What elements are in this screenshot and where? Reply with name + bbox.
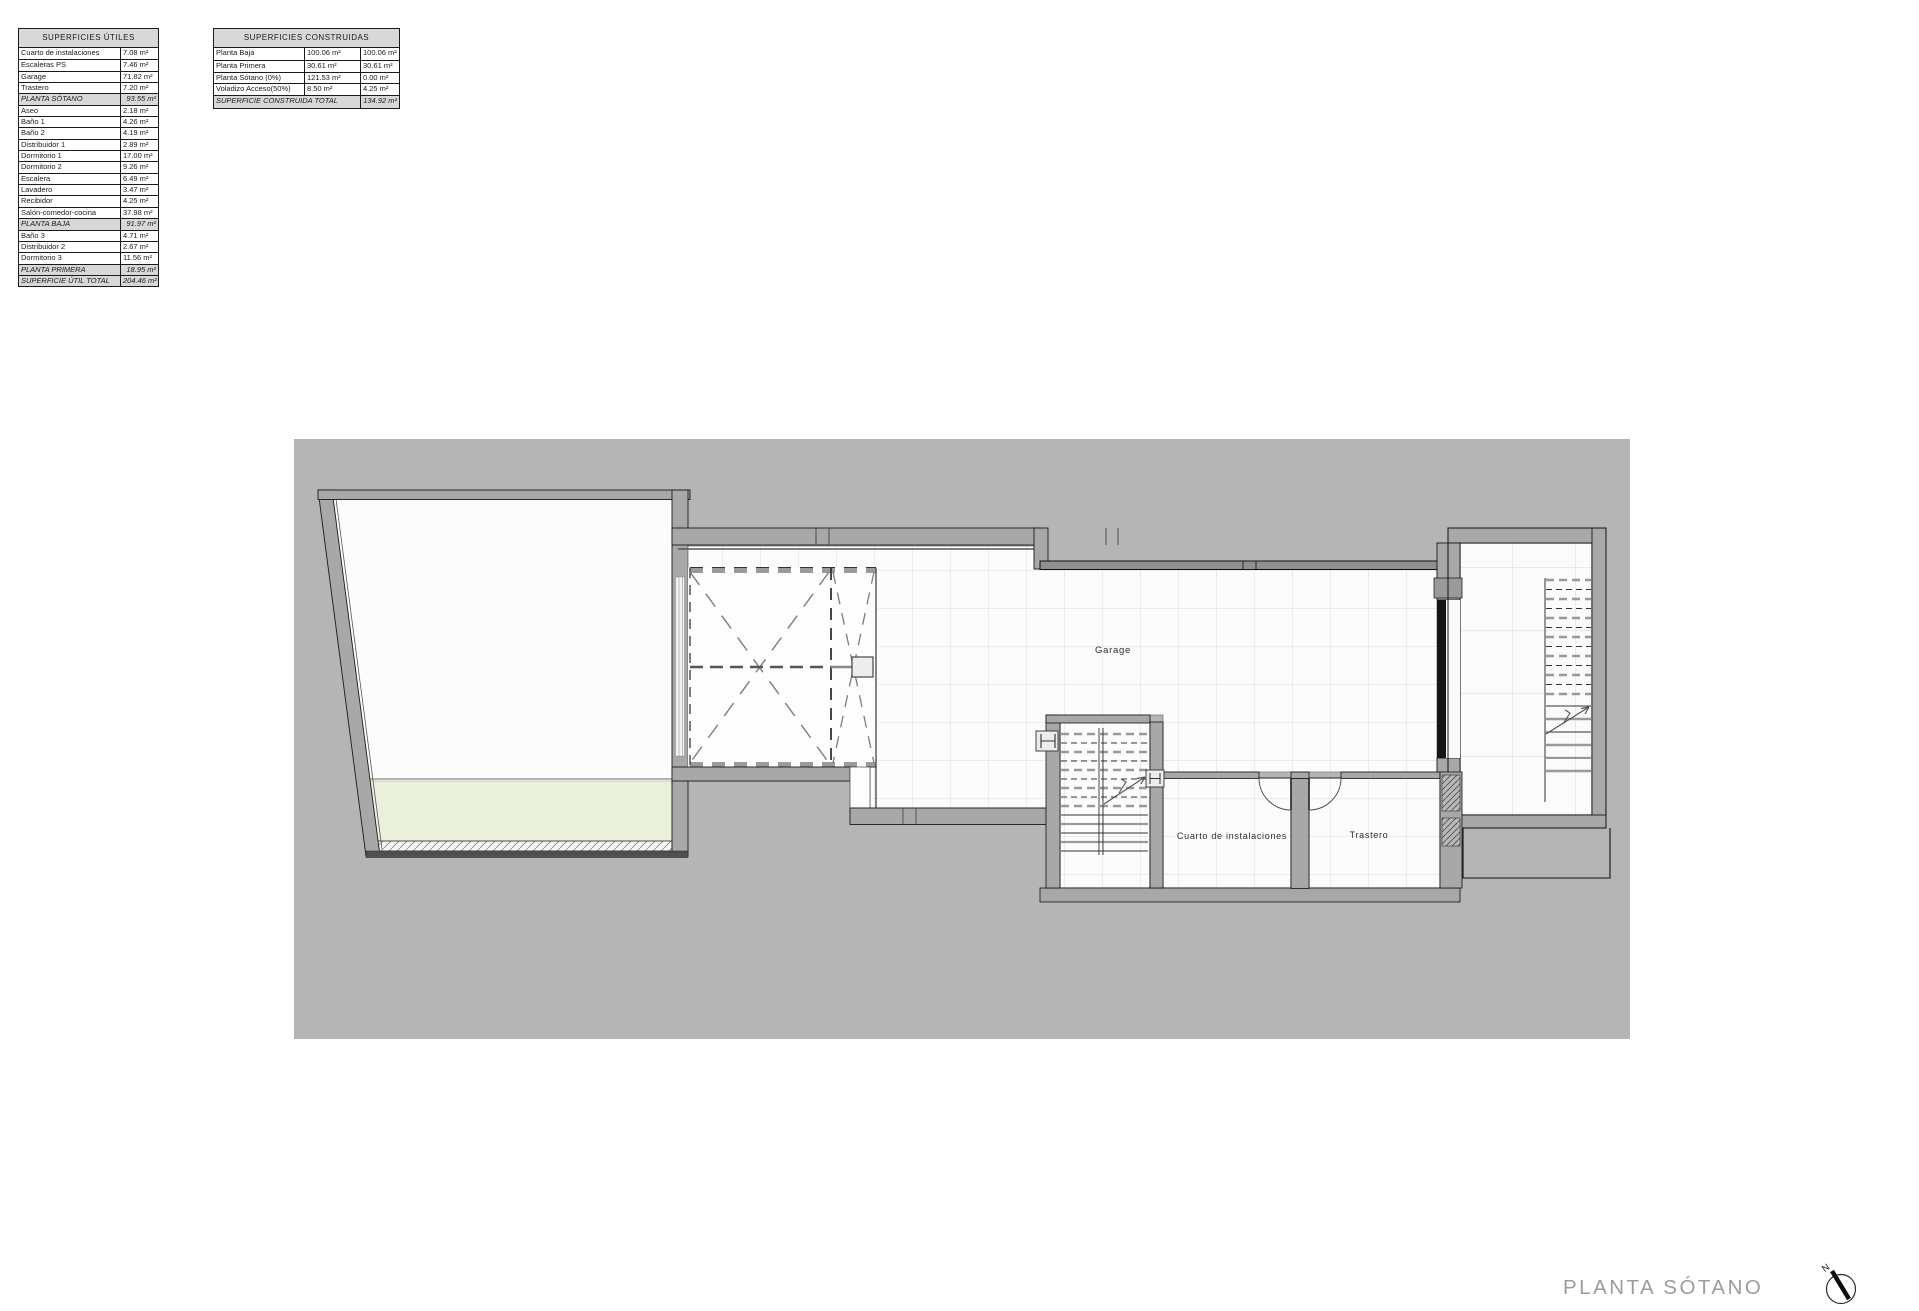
floor-plan-drawing: Garage Cuarto de instalaciones Trastero … xyxy=(0,0,1919,1311)
access-patio xyxy=(318,490,690,858)
room-label-cuarto: Cuarto de instalaciones xyxy=(1177,831,1287,841)
sheet-title: PLANTA SÓTANO xyxy=(1563,1276,1763,1300)
north-label: N xyxy=(1820,1262,1832,1275)
room-label-trastero: Trastero xyxy=(1350,830,1389,840)
garage-door xyxy=(1437,600,1446,758)
door-jamb-symbol xyxy=(1036,731,1058,751)
room-label-garage: Garage xyxy=(1095,645,1131,656)
patio-bottom-wall xyxy=(366,851,688,858)
door-jamb-symbol xyxy=(1146,770,1164,787)
hatched-strip xyxy=(376,841,673,851)
patio-top-wall xyxy=(318,490,690,500)
north-arrow-icon: N xyxy=(1820,1262,1855,1304)
void-anchor-box xyxy=(852,657,873,677)
garden-strip xyxy=(367,781,672,841)
